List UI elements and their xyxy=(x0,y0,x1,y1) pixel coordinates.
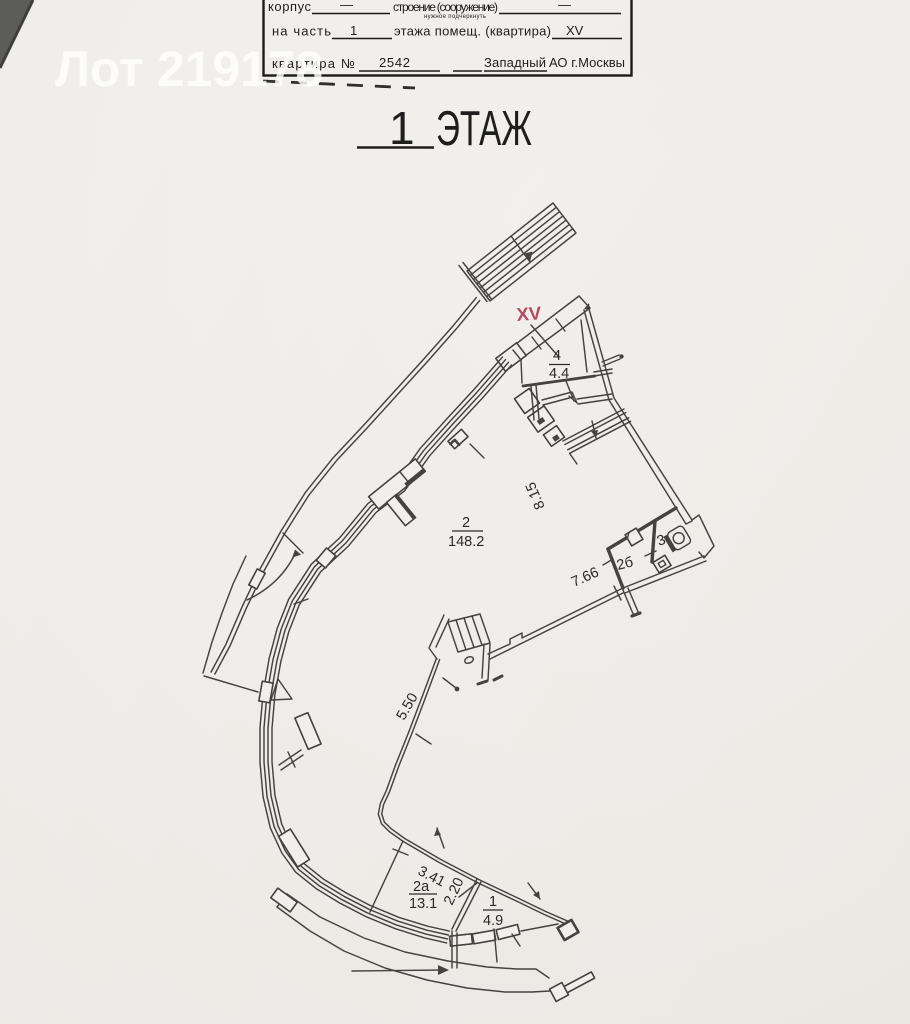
svg-text:1: 1 xyxy=(350,23,357,38)
svg-text:13.1: 13.1 xyxy=(409,896,437,912)
svg-text:2а: 2а xyxy=(413,879,430,895)
svg-text:—: — xyxy=(340,0,353,12)
svg-text:4.9: 4.9 xyxy=(483,913,503,929)
svg-text:2: 2 xyxy=(462,515,470,531)
svg-text:1: 1 xyxy=(489,894,497,910)
svg-text:Западный: Западный xyxy=(484,55,546,70)
svg-text:корпус: корпус xyxy=(268,0,312,14)
svg-text:4.4: 4.4 xyxy=(549,366,569,382)
svg-text:на часть: на часть xyxy=(272,24,331,39)
svg-text:Лот 219178: Лот 219178 xyxy=(55,41,323,97)
svg-text:этажа помещ. (квартира): этажа помещ. (квартира) xyxy=(394,24,551,39)
svg-text:нужное подчеркнуть: нужное подчеркнуть xyxy=(424,14,486,20)
svg-text:строение (сооружение): строение (сооружение) xyxy=(393,0,498,14)
svg-text:ЭТАЖ: ЭТАЖ xyxy=(436,102,532,156)
svg-text:148.2: 148.2 xyxy=(448,534,484,550)
svg-text:4: 4 xyxy=(553,348,561,364)
svg-text:—: — xyxy=(558,0,571,12)
svg-text:2542: 2542 xyxy=(379,55,410,70)
svg-text:XV: XV xyxy=(516,302,543,325)
svg-text:АО г.Москвы: АО г.Москвы xyxy=(549,55,625,70)
svg-text:XV: XV xyxy=(566,23,584,38)
